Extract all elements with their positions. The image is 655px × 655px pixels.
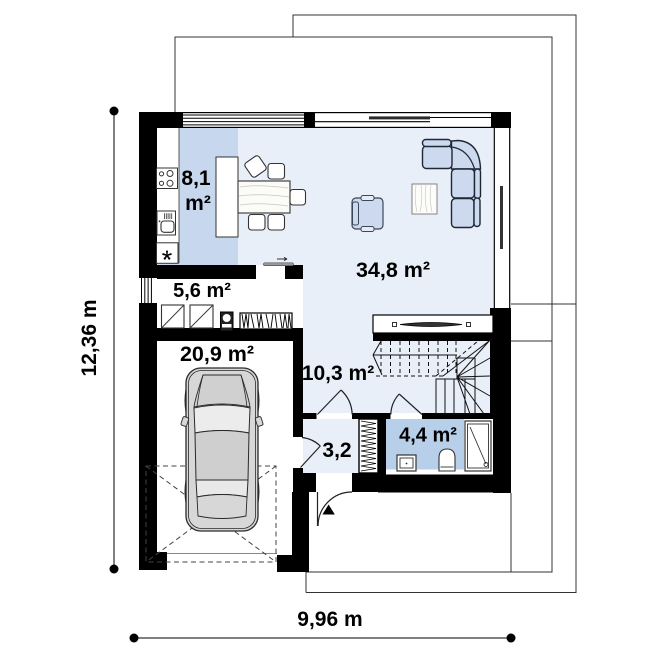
svg-text:20,9 m²: 20,9 m²	[180, 342, 254, 366]
svg-text:9,96 m: 9,96 m	[297, 608, 362, 631]
svg-text:5,6 m²: 5,6 m²	[173, 280, 231, 302]
svg-text:8,1: 8,1	[181, 167, 211, 190]
svg-text:12,36 m: 12,36 m	[78, 299, 101, 376]
svg-text:m²: m²	[185, 192, 211, 215]
svg-text:4,4 m²: 4,4 m²	[399, 425, 457, 447]
svg-text:3,2: 3,2	[322, 439, 351, 462]
svg-text:10,3 m²: 10,3 m²	[302, 362, 374, 385]
svg-text:34,8 m²: 34,8 m²	[356, 258, 430, 282]
